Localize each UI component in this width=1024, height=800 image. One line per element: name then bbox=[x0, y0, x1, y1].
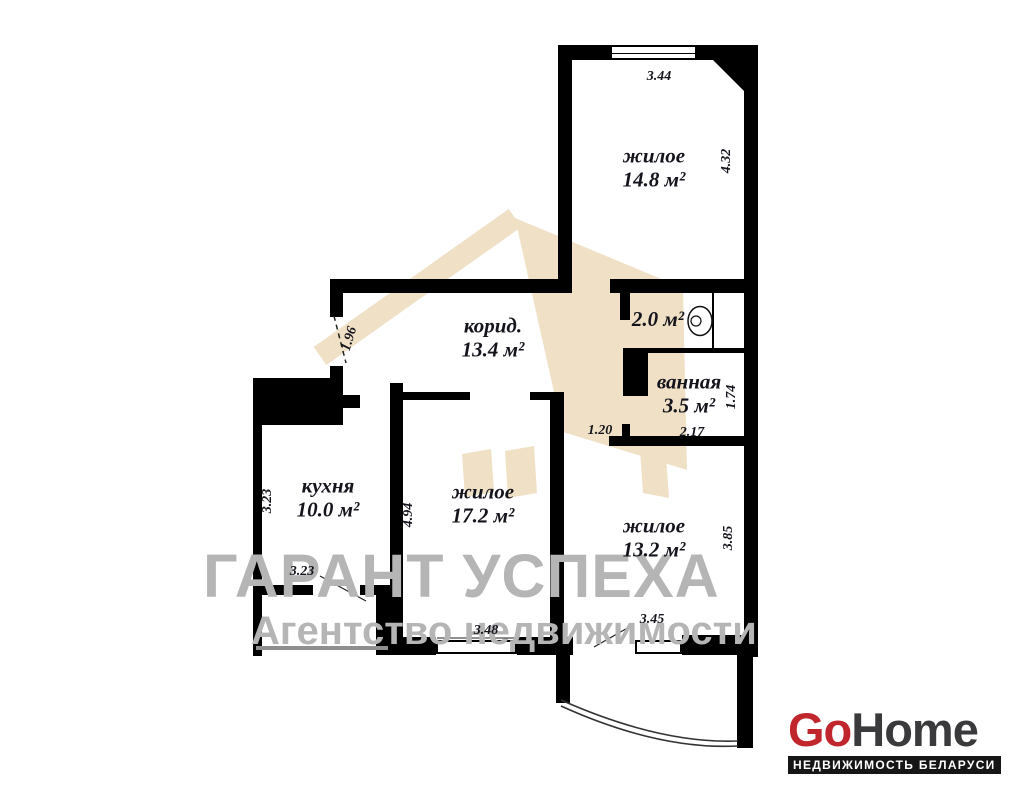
wall bbox=[737, 655, 753, 748]
room-name: кухня bbox=[297, 474, 360, 498]
wall bbox=[330, 293, 343, 317]
wall bbox=[622, 424, 630, 436]
dimension-label: 1.74 bbox=[724, 385, 740, 410]
toilet-icon bbox=[688, 307, 712, 336]
dimension-label: 3.23 bbox=[260, 489, 276, 514]
room-name: жилое bbox=[452, 480, 515, 504]
room-area: 13.4 м² bbox=[462, 338, 525, 362]
room-label-wc: 2.0 м² bbox=[632, 308, 684, 332]
wall bbox=[744, 45, 758, 657]
logo-brand: GoHome bbox=[788, 706, 1001, 753]
dimension-label: 3.23 bbox=[290, 564, 315, 580]
room-area: 14.8 м² bbox=[623, 168, 686, 192]
wall bbox=[610, 279, 744, 293]
logo-brand-go: Go bbox=[788, 703, 851, 756]
wall bbox=[337, 395, 360, 408]
balcony-curve bbox=[561, 706, 738, 746]
room-area: 2.0 м² bbox=[632, 308, 684, 332]
wall bbox=[620, 293, 630, 320]
wall bbox=[398, 392, 470, 400]
room-name: жилое bbox=[623, 144, 686, 168]
room-label-living-top: жилое14.8 м² bbox=[623, 144, 686, 191]
room-area: 17.2 м² bbox=[452, 504, 515, 528]
dimension-label: 3.44 bbox=[647, 69, 672, 85]
floor-plan: ГАРАНТ УСПЕХА Агентство недвижимости жил… bbox=[0, 0, 1024, 800]
dimension-label: 1.20 bbox=[588, 423, 613, 439]
room-area: 13.2 м² bbox=[623, 538, 686, 562]
dimension-label: 2.17 bbox=[680, 425, 705, 441]
room-label-kitchen: кухня10.0 м² bbox=[297, 474, 360, 521]
dimension-label: 3.85 bbox=[721, 526, 737, 551]
dimension-label: 3.45 bbox=[640, 612, 665, 628]
watermark-subtitle: Агентство недвижимости bbox=[251, 609, 757, 654]
dimension-label: 4.94 bbox=[401, 503, 417, 528]
wall bbox=[330, 279, 560, 293]
watermark-house-icon bbox=[0, 0, 1024, 800]
room-label-bathroom: ванная3.5 м² bbox=[657, 370, 721, 417]
room-label-corridor: корид.13.4 м² bbox=[462, 314, 525, 361]
room-name: ванная bbox=[657, 370, 721, 394]
logo-brand-home: Home bbox=[851, 703, 978, 756]
dimension-label: 1.96 bbox=[339, 325, 361, 353]
room-label-living-mid: жилое17.2 м² bbox=[452, 480, 515, 527]
logo-gohome: GoHome НЕДВИЖИМОСТЬ БЕЛАРУСИ bbox=[788, 706, 1001, 774]
wall bbox=[556, 655, 570, 703]
chamfer-wall bbox=[713, 60, 744, 91]
window bbox=[610, 45, 697, 60]
plan-linework bbox=[0, 0, 1024, 800]
logo-tagline: НЕДВИЖИМОСТЬ БЕЛАРУСИ bbox=[788, 756, 1001, 774]
room-name: корид. bbox=[462, 314, 525, 338]
wall bbox=[623, 353, 648, 396]
wall bbox=[253, 378, 343, 425]
balcony-curve bbox=[561, 700, 738, 741]
dimension-label: 4.32 bbox=[719, 149, 735, 174]
room-name: жилое bbox=[623, 514, 686, 538]
room-label-living-right: жилое13.2 м² bbox=[623, 514, 686, 561]
room-area: 10.0 м² bbox=[297, 498, 360, 522]
dimension-label: 3.48 bbox=[474, 623, 499, 639]
wall bbox=[558, 45, 572, 293]
room-area: 3.5 м² bbox=[657, 394, 721, 418]
